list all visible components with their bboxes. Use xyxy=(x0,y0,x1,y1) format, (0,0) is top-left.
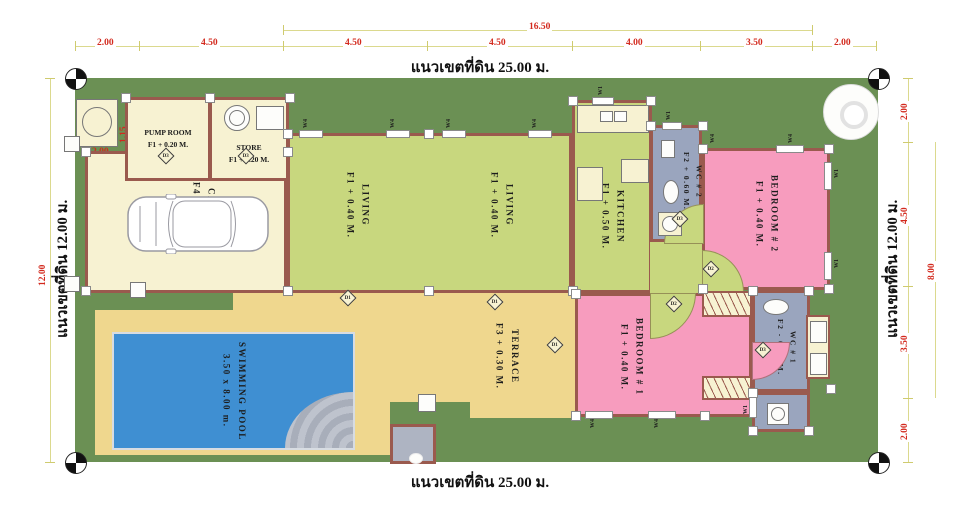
column xyxy=(81,147,91,157)
deck-post-icon xyxy=(130,282,146,298)
dimension-tick xyxy=(139,41,140,51)
door-tag-label: D1 xyxy=(345,296,351,301)
dimension-tick xyxy=(812,25,813,35)
room-level: F1 + 0.40 M. xyxy=(616,318,631,396)
boundary-label-top: แนวเขตที่ดิน 25.00 ม. xyxy=(300,55,660,79)
column xyxy=(283,129,293,139)
column xyxy=(646,121,656,131)
door-tag-label: D2 xyxy=(708,267,714,272)
column xyxy=(424,129,434,139)
store-room: STORE F1 + 0.20 M. xyxy=(209,97,289,181)
deck-post-icon xyxy=(418,394,436,412)
room-level: F1 + 0.40 M. xyxy=(342,172,357,238)
window xyxy=(824,162,832,190)
dimension-label: 16.50 xyxy=(527,22,552,32)
room-name: TERRACE xyxy=(507,315,522,397)
door-tag-label: D3 xyxy=(760,348,766,353)
sink-icon xyxy=(600,111,613,122)
dimension-tick xyxy=(700,41,701,51)
room-name: SWIMMING POOL xyxy=(234,342,249,441)
dimension-label: 4.50 xyxy=(343,38,364,48)
dimension-label: 4.50 xyxy=(487,38,508,48)
column xyxy=(571,289,581,299)
living2-label: LIVING F1 + 0.40 M. xyxy=(486,172,517,238)
wc2-label: WC # 2 F2 + 0.60 M. xyxy=(679,152,705,210)
column xyxy=(748,286,758,296)
dimension-label: 8.00 xyxy=(927,261,937,282)
closet xyxy=(702,376,752,400)
window-tag: W4 xyxy=(710,134,716,143)
column xyxy=(748,426,758,436)
column xyxy=(81,286,91,296)
window xyxy=(592,97,614,105)
floor-plan-canvas: 16.50 2.00 4.50 4.50 4.50 4.00 3.50 2.00… xyxy=(0,0,980,521)
room-name: LIVING xyxy=(501,172,516,238)
dimension-label: 3.50 xyxy=(744,38,765,48)
window xyxy=(442,130,466,138)
dimension-tick xyxy=(75,41,76,51)
column xyxy=(804,426,814,436)
door-tag-label: D3 xyxy=(677,217,683,222)
window xyxy=(749,396,757,418)
pool-shower-room xyxy=(390,424,436,464)
survey-marker-icon xyxy=(65,452,87,474)
column xyxy=(698,121,708,131)
gate-post-icon xyxy=(64,136,80,152)
toilet-icon xyxy=(763,299,789,315)
window-tag: W1 xyxy=(598,86,604,95)
column xyxy=(698,284,708,294)
living-room: LIVING F1 + 0.40 M. LIVING F1 + 0.40 M. xyxy=(287,133,572,293)
sink-icon xyxy=(810,353,827,375)
window xyxy=(299,130,323,138)
door-tag-label: D3 xyxy=(243,154,249,159)
column xyxy=(698,144,708,154)
column xyxy=(283,286,293,296)
column xyxy=(121,93,131,103)
survey-marker-icon xyxy=(65,68,87,90)
terrace-label: TERRACE F3 + 0.30 M. xyxy=(486,315,522,397)
window-tag: W4 xyxy=(390,119,396,128)
dimension-tick xyxy=(812,41,813,51)
column xyxy=(748,388,758,398)
kitchen-island xyxy=(577,167,603,201)
pump-room-label: PUMP ROOM F1 + 0.20 M. xyxy=(144,127,191,151)
dimension-label: 4.00 xyxy=(624,38,645,48)
pump-room: PUMP ROOM F1 + 0.20 M. xyxy=(125,97,211,181)
dimension-tick xyxy=(903,286,913,287)
room-level: F1 + 0.40 M. xyxy=(751,175,766,253)
column xyxy=(824,284,834,294)
door-tag-label: D1 xyxy=(492,300,498,305)
sink-icon xyxy=(661,140,675,158)
room-name: LIVING xyxy=(357,172,372,238)
door-tag-label: D1 xyxy=(552,343,558,348)
basin-icon xyxy=(256,106,284,130)
window xyxy=(776,145,804,153)
dimension-tick xyxy=(283,41,284,51)
washer-icon xyxy=(224,105,250,131)
dimension-tick xyxy=(427,41,428,51)
room-name: BEDROOM # 2 xyxy=(766,175,781,253)
column xyxy=(283,147,293,157)
gate-post-icon xyxy=(64,276,80,292)
room-name: KITCHEN xyxy=(612,183,627,249)
dimension-label: 2.00 xyxy=(900,421,910,442)
window-tag: W1 xyxy=(666,111,672,120)
window xyxy=(386,130,410,138)
pool-label: SWIMMING POOL 3.50 x 8.00 m. xyxy=(218,342,249,441)
window-tag: W4 xyxy=(590,419,596,428)
closet xyxy=(702,291,752,317)
boundary-label-right: แนวเขตที่ดิน 12.00 ม. xyxy=(880,200,904,338)
door-tag-label: D3 xyxy=(163,154,169,159)
window xyxy=(528,130,552,138)
window xyxy=(648,411,676,419)
column xyxy=(804,286,814,296)
survey-marker-icon xyxy=(868,452,890,474)
stove-icon xyxy=(621,159,649,183)
hallway xyxy=(650,242,702,295)
kitchen-counter xyxy=(577,105,649,133)
room-level: F1 + 0.40 M. xyxy=(486,172,501,238)
dimension-label: 12.00 xyxy=(38,263,48,288)
bedroom2-label: BEDROOM # 2 F1 + 0.40 M. xyxy=(751,175,782,253)
dimension-tick xyxy=(903,78,913,79)
dimension-tick xyxy=(903,398,913,399)
room-level: 3.50 x 8.00 m. xyxy=(218,342,233,441)
room-name: BEDROOM # 1 xyxy=(631,318,646,396)
window-tag: W4 xyxy=(532,119,538,128)
boundary-label-left: แนวเขตที่ดิน 12.00 ม. xyxy=(50,200,74,338)
window-tag: W4 xyxy=(446,119,452,128)
window-tag: W4 xyxy=(788,134,794,143)
column xyxy=(824,144,834,154)
column xyxy=(700,411,710,421)
dimension-label: 2.00 xyxy=(95,38,116,48)
dimension-tick xyxy=(876,41,877,51)
dimension-tick xyxy=(572,41,573,51)
window-tag: W1 xyxy=(834,169,840,178)
window xyxy=(824,252,832,280)
sink-icon xyxy=(614,111,627,122)
column xyxy=(571,411,581,421)
sink-icon xyxy=(810,321,827,343)
survey-marker-icon xyxy=(868,68,890,90)
column xyxy=(568,96,578,106)
dimension-tick xyxy=(45,78,55,79)
swimming-pool: SWIMMING POOL 3.50 x 8.00 m. xyxy=(112,332,355,450)
vanity-counter xyxy=(806,315,830,379)
door-tag-label: D2 xyxy=(671,302,677,307)
kitchen-room: KITCHEN F1 + 0.50 M. xyxy=(572,100,652,293)
column xyxy=(424,286,434,296)
dimension-line xyxy=(908,78,909,462)
laundry-area xyxy=(752,392,810,432)
dimension-tick xyxy=(45,462,55,463)
dimension-tick xyxy=(903,142,913,143)
window xyxy=(662,122,682,130)
column xyxy=(205,93,215,103)
column xyxy=(646,96,656,106)
toilet-icon xyxy=(409,453,423,464)
dimension-tick xyxy=(903,462,913,463)
room-name: PUMP ROOM xyxy=(144,127,191,139)
pool-steps-icon xyxy=(285,392,353,448)
window-tag: W4 xyxy=(654,419,660,428)
septic-tank-icon xyxy=(823,84,879,140)
window-tag: W4 xyxy=(303,119,309,128)
dimension-label: 2.00 xyxy=(900,101,910,122)
bedroom1-label: BEDROOM # 1 F1 + 0.40 M. xyxy=(616,318,647,396)
column xyxy=(285,93,295,103)
washer-icon xyxy=(767,403,789,425)
dimension-label: 4.50 xyxy=(199,38,220,48)
room-level: F3 + 0.30 M. xyxy=(491,315,506,397)
water-tank-icon xyxy=(76,99,118,147)
room-level: F2 + 0.60 M. xyxy=(679,152,692,210)
window xyxy=(585,411,613,419)
toilet-icon xyxy=(663,180,679,204)
dimension-tick xyxy=(283,25,284,35)
car-icon xyxy=(126,194,271,254)
column xyxy=(826,384,836,394)
dimension-label: 2.00 xyxy=(832,38,853,48)
boundary-label-bottom: แนวเขตที่ดิน 25.00 ม. xyxy=(300,470,660,494)
living1-label: LIVING F1 + 0.40 M. xyxy=(342,172,373,238)
window-tag: W1 xyxy=(834,259,840,268)
